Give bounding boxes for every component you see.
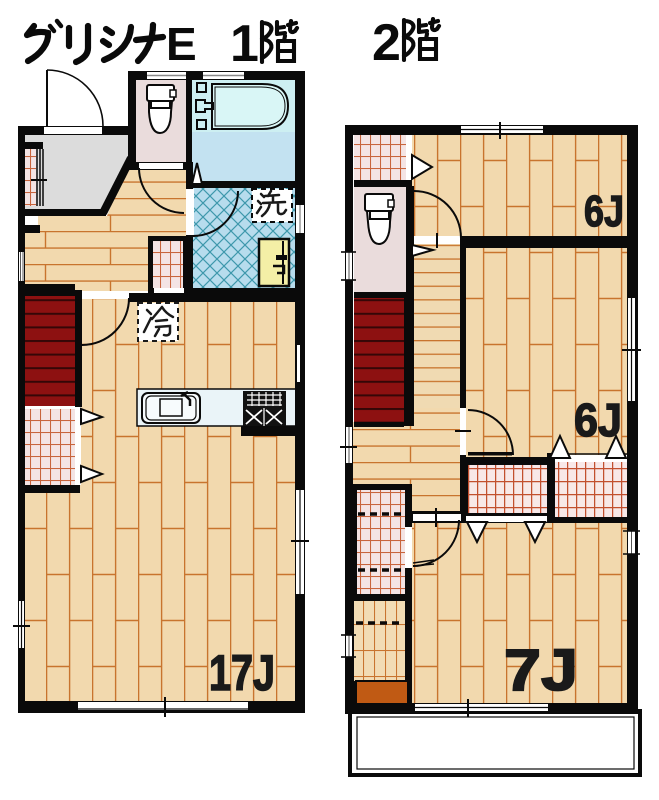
svg-text:17J: 17J [209, 645, 275, 701]
svg-text:1: 1 [230, 15, 259, 73]
svg-text:2: 2 [372, 14, 401, 72]
svg-text:7J: 7J [504, 638, 578, 703]
svg-text:6J: 6J [584, 187, 624, 236]
svg-text:6J: 6J [574, 394, 622, 446]
svg-text:E: E [166, 18, 197, 70]
